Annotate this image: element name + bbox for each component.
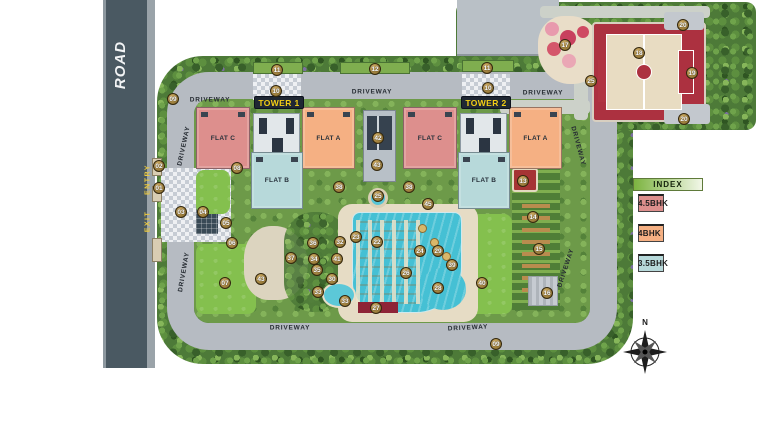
marker-16: 16 — [541, 287, 553, 299]
flat-label: FLAT C — [211, 135, 235, 142]
marker-43: 43 — [255, 273, 267, 285]
marker-38: 38 — [333, 181, 345, 193]
marker-28: 28 — [432, 282, 444, 294]
driveway-label: DRIVEWAY — [352, 89, 392, 96]
marker-09: 09 — [167, 93, 179, 105]
marker-05: 05 — [220, 217, 232, 229]
marker-45: 45 — [422, 198, 434, 210]
marker-37: 37 — [285, 252, 297, 264]
marker-20: 20 — [678, 113, 690, 125]
marker-13: 13 — [517, 175, 529, 187]
marker-03: 03 — [175, 206, 187, 218]
marker-02: 02 — [153, 160, 165, 172]
driveway-label: DRIVEWAY — [523, 90, 563, 97]
marker-14: 14 — [527, 211, 539, 223]
marker-25: 25 — [585, 75, 597, 87]
legend-label: 3.5BHK — [638, 259, 668, 268]
exit-label: EXIT — [145, 204, 152, 240]
marker-41: 41 — [331, 253, 343, 265]
marker-35: 35 — [311, 264, 323, 276]
marker-32: 32 — [334, 236, 346, 248]
legend-label: 4.5BHK — [638, 199, 668, 208]
marker-33: 33 — [339, 295, 351, 307]
legend-label: 4BHK — [638, 229, 661, 238]
flat-label: FLAT A — [523, 135, 547, 142]
marker-39: 39 — [446, 259, 458, 271]
driveway-label: DRIVEWAY — [270, 325, 310, 332]
marker-12: 12 — [369, 63, 381, 75]
marker-25: 25 — [372, 190, 384, 202]
marker-17: 17 — [559, 39, 571, 51]
umbrella — [418, 224, 427, 233]
pool-loungers — [356, 220, 420, 304]
marker-27: 27 — [370, 302, 382, 314]
tower1-label: TOWER 1 — [254, 96, 304, 109]
marker-08: 08 — [231, 162, 243, 174]
marker-29: 29 — [432, 245, 444, 257]
marker-11: 11 — [481, 62, 493, 74]
flat-label: FLAT A — [316, 135, 340, 142]
marker-23: 23 — [350, 231, 362, 243]
marker-10: 10 — [270, 85, 282, 97]
marker-09: 09 — [490, 338, 502, 350]
tower2-flat-b: FLAT B — [458, 152, 510, 209]
marker-36: 36 — [307, 237, 319, 249]
play-umbrella — [545, 22, 559, 36]
tower2-label: TOWER 2 — [461, 96, 511, 109]
legend-title: INDEX — [633, 178, 703, 191]
flat-label: FLAT C — [418, 135, 442, 142]
index-legend: INDEX 4.5BHK4BHK3.5BHK — [633, 178, 758, 293]
driveway-label: DRIVEWAY — [190, 97, 230, 104]
marker-20: 20 — [677, 19, 689, 31]
marker-07: 07 — [219, 277, 231, 289]
marker-18: 18 — [633, 47, 645, 59]
site-plan-canvas: ROAD ENTRY EXIT FLAT C FL — [0, 0, 768, 425]
marker-10: 10 — [482, 82, 494, 94]
tower2-flat-a: FLAT A — [509, 107, 562, 169]
marker-01: 01 — [153, 182, 165, 194]
marker-11: 11 — [271, 64, 283, 76]
marker-26: 26 — [400, 267, 412, 279]
marker-42: 42 — [372, 132, 384, 144]
road-label: ROAD — [85, 57, 155, 73]
tower1-flat-a: FLAT A — [302, 107, 355, 169]
tower1-flat-b: FLAT B — [251, 152, 303, 209]
flat-label: FLAT B — [472, 177, 496, 184]
marker-30: 30 — [326, 273, 338, 285]
marker-22: 22 — [371, 236, 383, 248]
marker-33: 33 — [312, 286, 324, 298]
compass-rose: N — [618, 316, 672, 378]
tower1-flat-c: FLAT C — [196, 107, 250, 169]
marker-38: 38 — [403, 181, 415, 193]
entry-label: ENTRY — [145, 160, 152, 200]
marker-24: 24 — [414, 245, 426, 257]
marker-40: 40 — [476, 277, 488, 289]
tower2-flat-c: FLAT C — [403, 107, 457, 169]
gate-house — [152, 238, 162, 262]
marker-15: 15 — [533, 243, 545, 255]
play-umbrella — [577, 26, 589, 38]
marker-06: 06 — [226, 237, 238, 249]
marker-43: 43 — [371, 159, 383, 171]
court-center-circle — [636, 64, 652, 80]
play-umbrella — [562, 54, 576, 68]
compass-north-label: N — [642, 318, 648, 327]
marker-19: 19 — [686, 67, 698, 79]
marker-04: 04 — [197, 206, 209, 218]
flat-label: FLAT B — [265, 177, 289, 184]
